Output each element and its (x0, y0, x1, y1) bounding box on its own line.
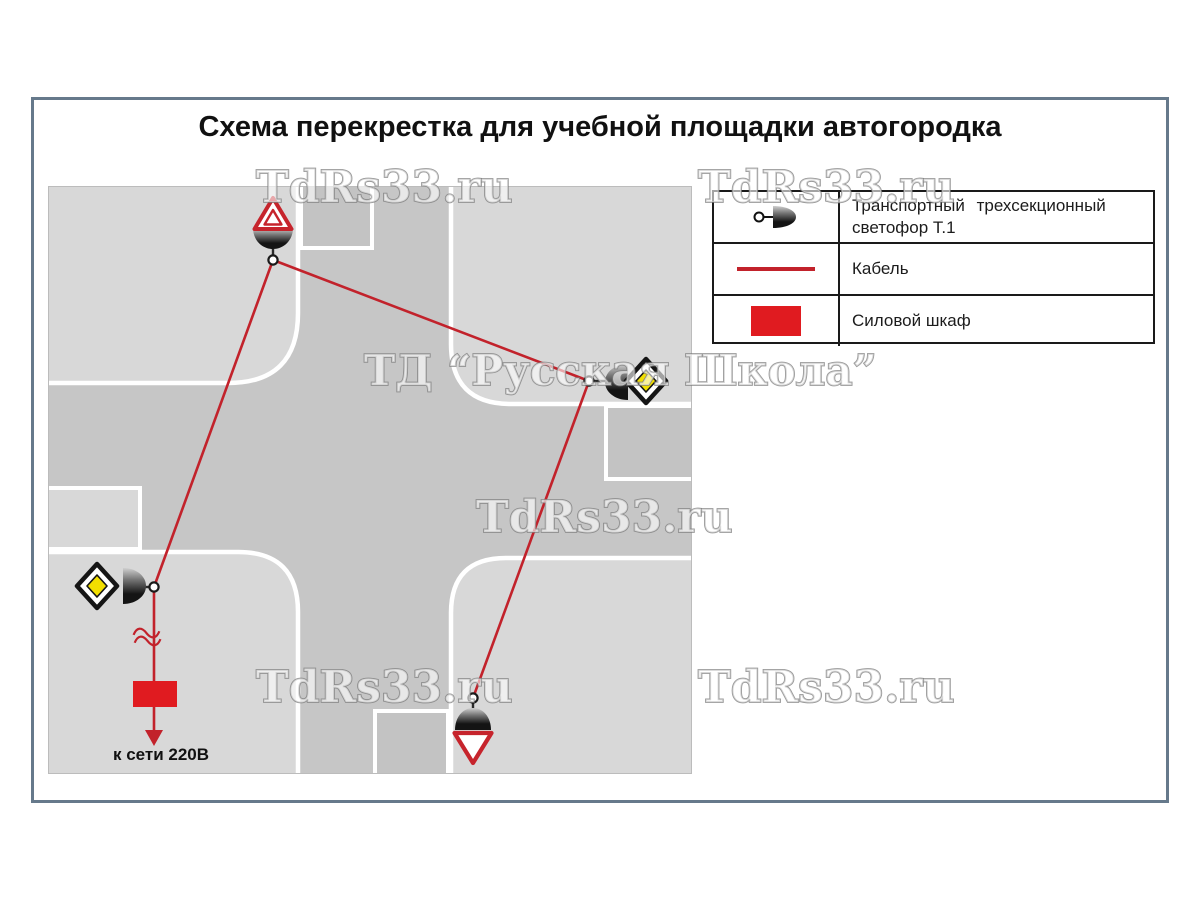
mains-label: к сети 220В (113, 745, 209, 764)
cable-node-icon (584, 376, 593, 385)
intersection-diagram: к сети 220В (48, 186, 692, 774)
lane-patch-right (606, 406, 692, 479)
cable-node-icon (468, 693, 477, 702)
legend-label-traffic-light: Транспортный трехсекционный светофор Т.1 (840, 192, 1153, 242)
power-cabinet-icon (751, 306, 801, 336)
power-cabinet (133, 681, 177, 707)
lane-patch-bottom (375, 711, 448, 774)
legend: Транспортный трехсекционный светофор Т.1… (712, 190, 1155, 344)
content-frame: Схема перекрестка для учебной площадки а… (31, 97, 1169, 803)
lane-patch-top (301, 186, 372, 248)
legend-icon-cell (714, 192, 840, 242)
cable-node-icon (268, 255, 277, 264)
page-title: Схема перекрестка для учебной площадки а… (34, 111, 1166, 144)
legend-label-cable: Кабель (840, 242, 1153, 294)
lane-patch-left (48, 488, 140, 549)
legend-icon-cell (714, 294, 840, 346)
cable-line-icon (737, 267, 815, 271)
cable-node-icon (149, 582, 158, 591)
legend-icon-cell (714, 242, 840, 294)
watermark-bottom-right: TdRs33.ru (698, 662, 955, 713)
legend-label-cabinet: Силовой шкаф (840, 294, 1153, 346)
screenshot-page: Схема перекрестка для учебной площадки а… (0, 0, 1200, 900)
traffic-light-icon (746, 197, 806, 237)
